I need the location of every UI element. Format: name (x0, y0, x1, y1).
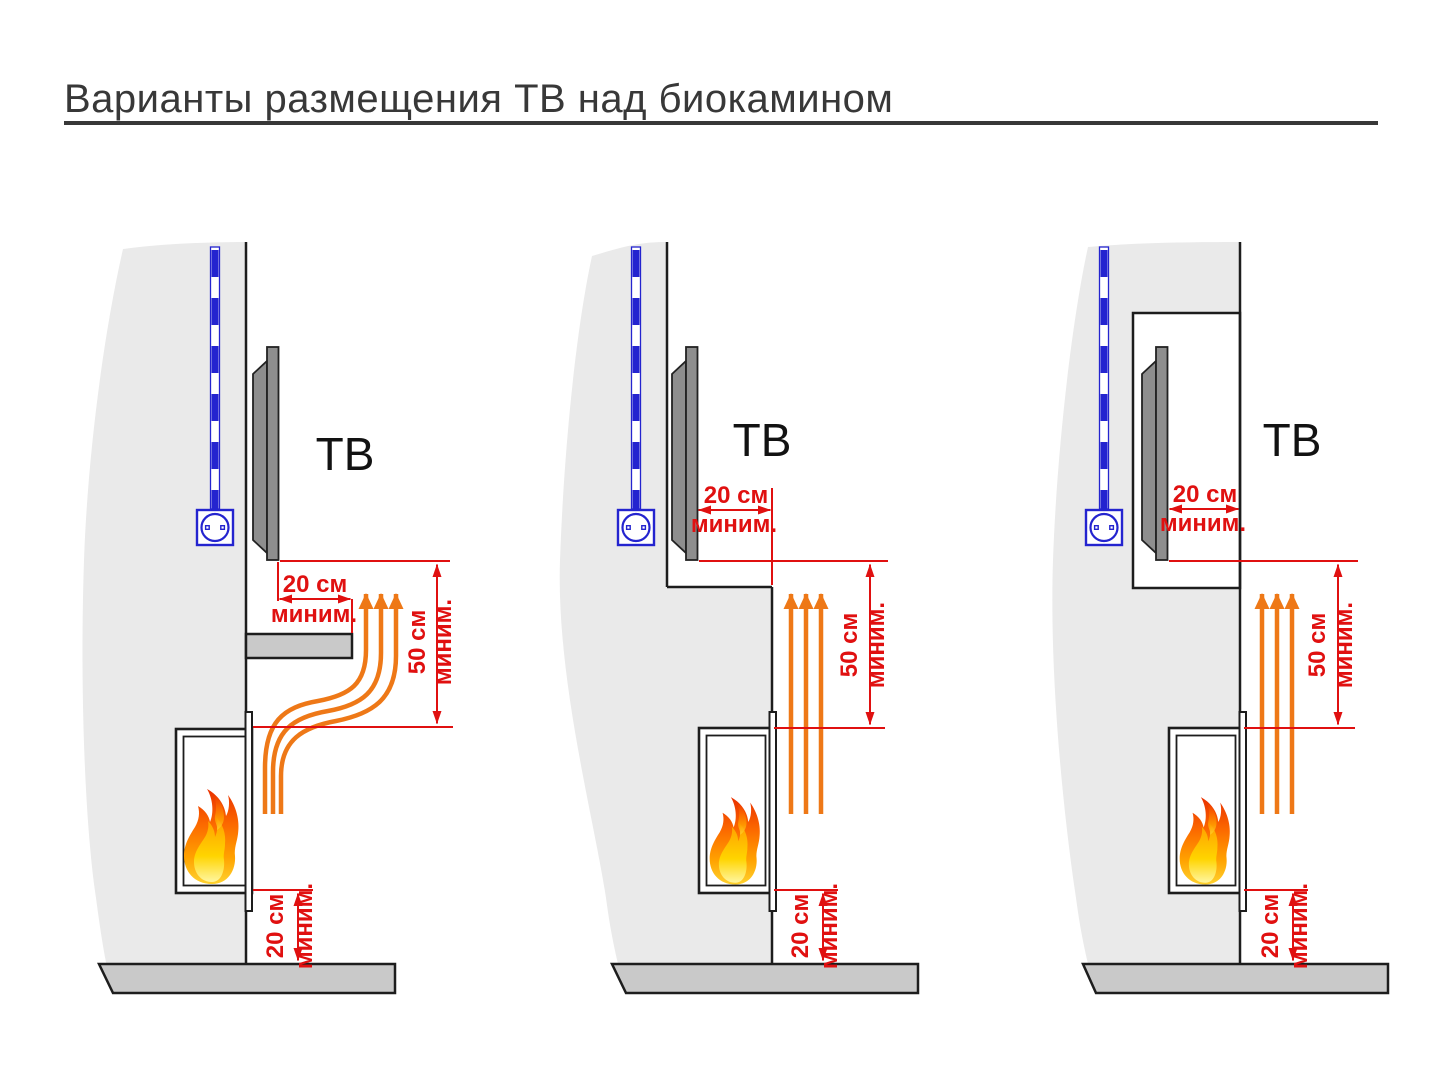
side-clearance-qualifier: миним. (271, 601, 357, 628)
vertical-clearance-value: 50 см (1304, 613, 1331, 677)
power-outlet (197, 510, 233, 545)
infographic-page: Варианты размещения ТВ над биокамином (0, 0, 1440, 1080)
floor-clearance-qualifier: миним. (1286, 883, 1313, 969)
floor-clearance-value: 20 см (1257, 894, 1284, 958)
side-clearance-value: 20 см (1173, 481, 1237, 508)
page-title: Варианты размещения ТВ над биокамином (64, 77, 893, 121)
diagram-variant-3: ТВ 20 см миним. 50 см миним. 20 см миним… (1052, 242, 1388, 993)
floor-clearance-value: 20 см (787, 894, 814, 958)
title-underline (64, 121, 1378, 125)
power-outlet (618, 510, 654, 545)
vertical-clearance-value: 50 см (404, 610, 431, 674)
side-clearance-value: 20 см (283, 571, 347, 598)
vertical-clearance-qualifier: миним. (1331, 602, 1358, 688)
floor (1083, 964, 1388, 993)
diagram-variant-1: ТВ 20 см миним. 50 см миним. 20 см миним… (83, 242, 458, 993)
power-outlet (1086, 510, 1122, 545)
floor (99, 964, 395, 993)
tv-label: ТВ (316, 428, 375, 480)
power-cable (211, 247, 220, 509)
floor (612, 964, 918, 993)
floor-clearance-qualifier: миним. (291, 883, 318, 969)
protective-shelf (246, 634, 352, 658)
floor-clearance-value: 20 см (262, 894, 289, 958)
fireplace-glass-front (1240, 712, 1247, 911)
vertical-clearance-qualifier: миним. (863, 602, 890, 688)
side-clearance-qualifier: миним. (1160, 510, 1246, 537)
diagram-variant-2: ТВ 20 см миним. 50 см миним. 20 см миним… (560, 242, 918, 993)
tv-label: ТВ (1263, 414, 1322, 466)
tv-side-view (253, 347, 279, 560)
power-cable (632, 247, 641, 509)
floor-clearance-qualifier: миним. (816, 883, 843, 969)
fireplace-glass-front (770, 712, 777, 911)
vertical-clearance-value: 50 см (836, 613, 863, 677)
vertical-clearance-qualifier: миним. (430, 599, 457, 685)
fireplace-glass-front (246, 712, 253, 911)
power-cable (1100, 247, 1109, 509)
diagram-canvas: Варианты размещения ТВ над биокамином (0, 0, 1440, 1080)
heat-flow-arrows (791, 594, 821, 814)
tv-label: ТВ (733, 414, 792, 466)
heat-flow-arrows (1262, 594, 1292, 814)
side-clearance-value: 20 см (704, 482, 768, 509)
side-clearance-qualifier: миним. (691, 511, 777, 538)
